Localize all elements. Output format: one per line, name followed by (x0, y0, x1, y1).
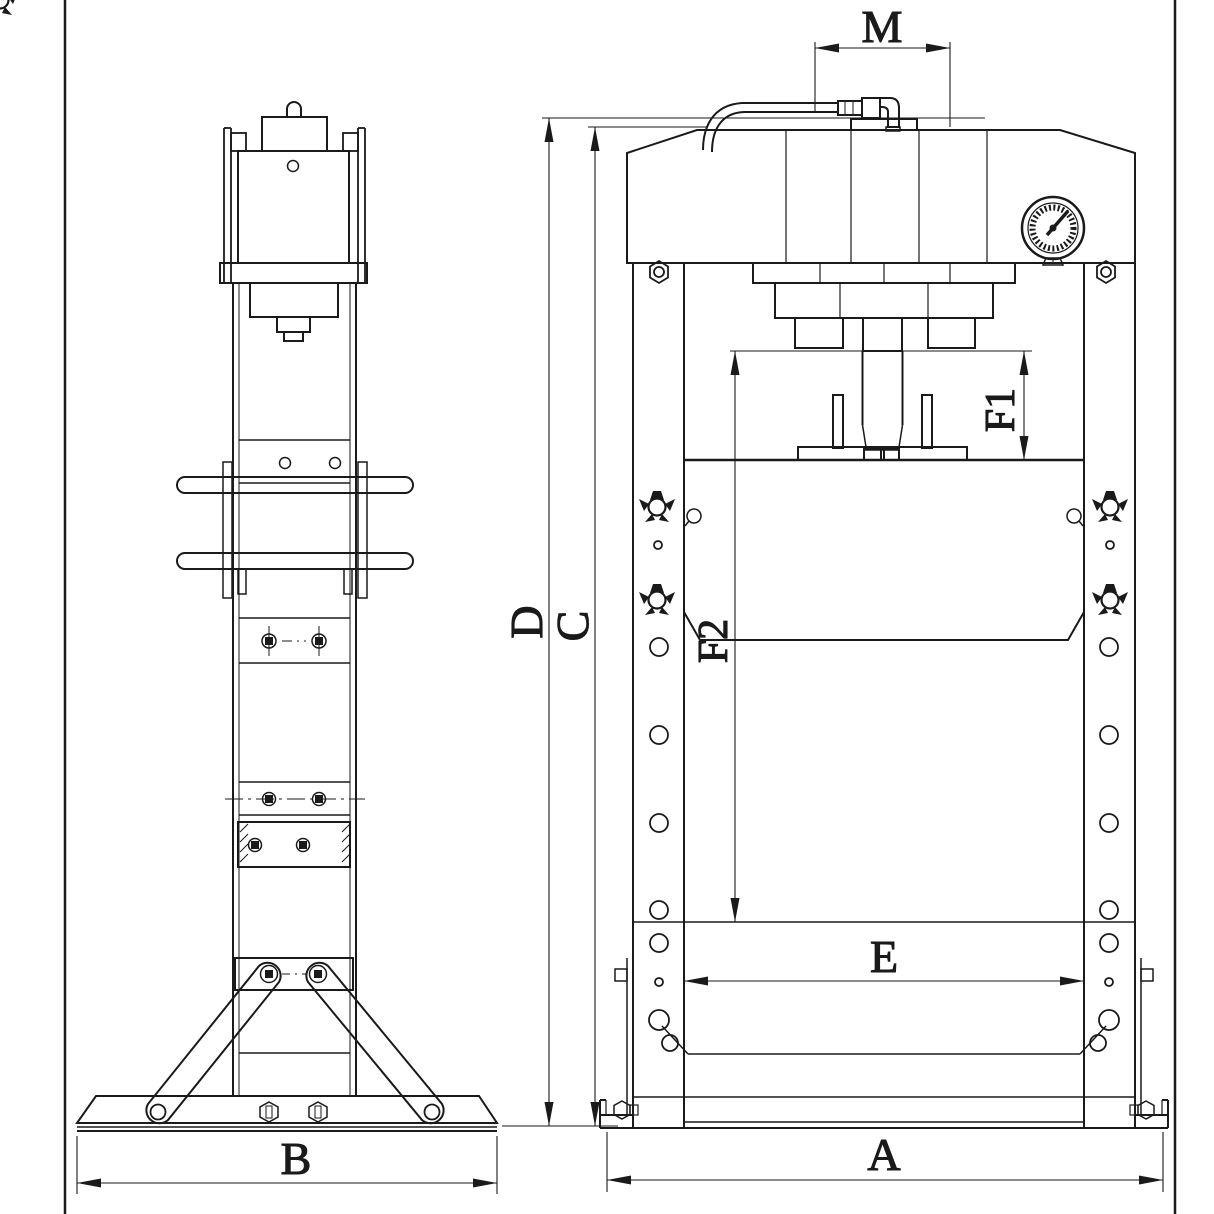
dim-label-e: E (870, 931, 898, 982)
dim-label-f2: F2 (691, 619, 737, 663)
dim-label-d: D (501, 605, 552, 638)
dim-label-f1: F1 (978, 388, 1024, 432)
dim-label-m: M (862, 1, 903, 52)
press-drawing: M D C F1 (0, 0, 1214, 1214)
dim-label-a: A (867, 1129, 900, 1180)
sheet-background (0, 0, 1214, 1214)
drawing-sheet: M D C F1 (0, 0, 1214, 1214)
dim-label-c: C (547, 611, 598, 642)
dim-label-b: B (281, 1133, 312, 1184)
